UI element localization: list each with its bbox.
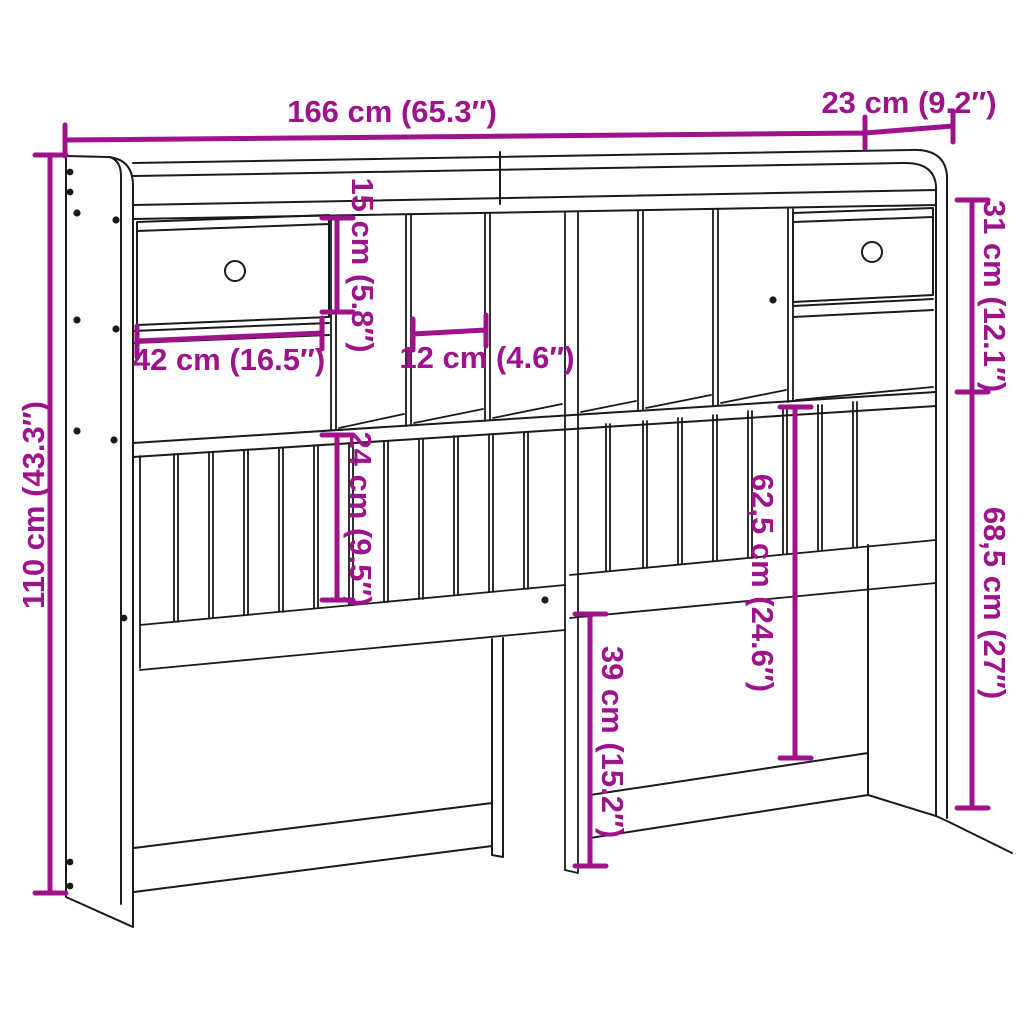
dimension-slat-panel-height: 24 cm (9.5″) xyxy=(322,431,378,606)
dimension-label: 24 cm (9.5″) xyxy=(343,431,378,606)
dimension-cubby-slot-width: 12 cm (4.6″) xyxy=(399,315,574,375)
middle-shelf xyxy=(133,392,936,457)
dimension-total-height: 110 cm (43.3″) xyxy=(16,155,66,893)
dimension-label: 110 cm (43.3″) xyxy=(16,401,51,609)
dimension-label: 23 cm (9.2″) xyxy=(821,85,996,120)
dimension-label: 68,5 cm (27″) xyxy=(977,507,1012,699)
furniture-drawing xyxy=(66,150,1012,927)
dimension-total-width: 166 cm (65.3″) xyxy=(65,94,865,156)
left-drawer xyxy=(133,215,329,343)
dimension-lower-section-height: 68,5 cm (27″) xyxy=(957,392,1012,808)
dimension-label: 42 cm (16.5″) xyxy=(133,342,325,377)
dimension-diagram-canvas: 166 cm (65.3″) 23 cm (9.2″) 110 cm (43.3… xyxy=(0,0,1024,1024)
dimension-label: 31 cm (12.1″) xyxy=(977,200,1012,392)
right-drawer-hole xyxy=(862,242,882,262)
top-board xyxy=(133,150,947,818)
center-stile-leg xyxy=(565,212,578,873)
legs-and-base-rails xyxy=(134,545,1012,892)
left-side-panel xyxy=(66,156,133,927)
dimension-label: 166 cm (65.3″) xyxy=(287,94,497,129)
dimension-leg-section-height: 39 cm (15.2″) xyxy=(575,614,630,866)
dimension-upper-section-height: 31 cm (12.1″) xyxy=(957,200,1012,392)
headboard-dimension-diagram: 166 cm (65.3″) 23 cm (9.2″) 110 cm (43.3… xyxy=(0,0,1024,1024)
dimension-label: 39 cm (15.2″) xyxy=(595,646,630,838)
dimension-label: 12 cm (4.6″) xyxy=(399,340,574,375)
dimension-line xyxy=(780,407,811,758)
cubby-dividers xyxy=(331,209,793,430)
dimension-label: 15 cm (5.8″) xyxy=(345,177,380,352)
cubby-shelf-edges xyxy=(339,387,933,428)
dimension-mid-section-height: 62,5 cm (24.6″) xyxy=(745,407,811,758)
right-drawer xyxy=(793,208,933,317)
dimension-label: 62,5 cm (24.6″) xyxy=(745,474,780,692)
left-drawer-hole xyxy=(225,261,245,281)
